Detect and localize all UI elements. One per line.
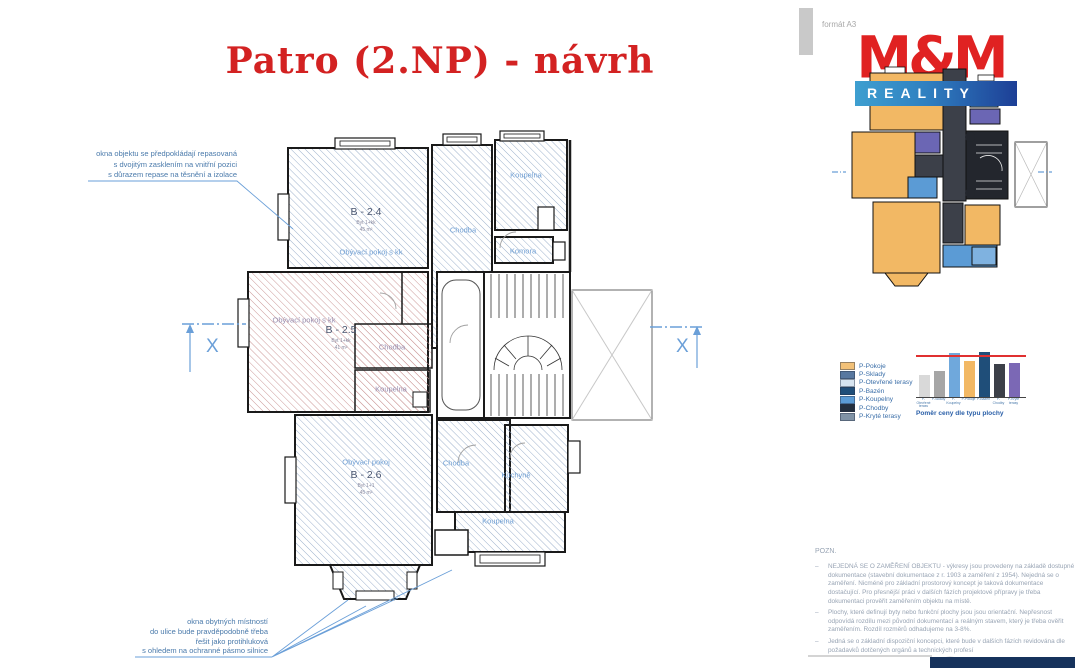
legend-swatch (840, 362, 855, 370)
room-area-b25: 41 m² (335, 345, 348, 351)
room-label-b26: Obývací pokoj (342, 458, 390, 467)
chart-reference-line (916, 355, 1026, 356)
legend-label: P-Koupelny (859, 396, 893, 403)
legend-item: P-Kryté terasy (840, 412, 913, 420)
legend-swatch (840, 396, 855, 404)
legend-swatch (840, 387, 855, 395)
room-label-chodba-bottom: Chodba (443, 459, 469, 468)
legend-item: P-Sklady (840, 370, 913, 378)
legend-swatch (840, 379, 855, 387)
note-bullet: – (815, 638, 821, 655)
legend-label: P-Otevřené terasy (859, 379, 913, 386)
room-unit-b26: Byt 1+1 (357, 483, 374, 489)
price-chart: P-Otevřené terasyP-SkladyP-KoupelnyP-Pok… (916, 349, 1026, 417)
room-code-b25: B - 2.5 (326, 324, 357, 336)
legend-swatch (840, 413, 855, 421)
room-area-b24: 45 m² (360, 227, 373, 233)
note-text: Jedná se o základní dispoziční koncepci,… (828, 638, 1075, 655)
title-block-bar (930, 657, 1075, 668)
room-label-kuchyne: Kuchyně (501, 471, 530, 480)
legend-swatch (840, 404, 855, 412)
notes-section: POZN. –NEJEDNÁ SE O ZAMĚŘENÍ OBJEKTU - v… (815, 548, 1075, 658)
staircase (484, 272, 570, 418)
plan-legend: P-PokojeP-SkladyP-Otevřené terasyP-Bazén… (840, 362, 913, 421)
chart-bar (994, 364, 1005, 397)
legend-item: P-Bazén (840, 387, 913, 395)
legend-label: P-Chodby (859, 405, 888, 412)
room-label-koupelna-bottom: Koupelna (482, 517, 514, 526)
legend-label: P-Pokoje (859, 363, 886, 370)
room-code-b24: B - 2.4 (351, 206, 382, 218)
chart-tick-labels: P-Otevřené terasyP-SkladyP-KoupelnyP-Pok… (916, 398, 1026, 407)
notes-list: –NEJEDNÁ SE O ZAMĚŘENÍ OBJEKTU - výkresy… (815, 563, 1075, 655)
chart-tick: P-Bazén (976, 398, 991, 407)
chart-bar (1009, 363, 1020, 398)
notes-heading: POZN. (815, 548, 1075, 555)
legend-swatch (840, 371, 855, 379)
chart-tick: P-Chodby (991, 398, 1006, 407)
drawing-sheet: Patro (2.NP) - návrh okna objektu se pře… (0, 0, 1075, 668)
legend-item: P-Otevřené terasy (840, 379, 913, 387)
room-unit-b24: Byt 1+kk (356, 220, 375, 226)
legend-item: P-Pokoje (840, 362, 913, 370)
note-bullet: – (815, 563, 821, 606)
annotation-bottom: okna obytných místností do ulice bude pr… (120, 617, 268, 656)
legend-label: P-Kryté terasy (859, 413, 901, 420)
page-title: Patro (2.NP) - návrh (210, 40, 670, 82)
chart-bar (964, 361, 975, 397)
note-text: Plochy, které definují byty nebo funkční… (828, 609, 1075, 635)
chart-title: Poměr ceny dle typu plochy (916, 410, 1026, 417)
chart-tick: P-Sklady (931, 398, 946, 407)
legend-item: P-Koupelny (840, 396, 913, 404)
room-label-koupelna-top: Koupelna (510, 171, 542, 180)
room-area-b26: 45 m² (360, 490, 373, 496)
chart-tick: P-Otevřené terasy (916, 398, 931, 407)
note-text: NEJEDNÁ SE O ZAMĚŘENÍ OBJEKTU - výkresy … (828, 563, 1075, 606)
chart-bar (934, 371, 945, 397)
note-item: –NEJEDNÁ SE O ZAMĚŘENÍ OBJEKTU - výkresy… (815, 563, 1075, 606)
room-label-komora: Komora (510, 247, 536, 256)
chart-bar (919, 375, 930, 397)
chart-tick: P-Kryté terasy (1006, 398, 1021, 407)
legend-item: P-Chodby (840, 404, 913, 412)
legend-label: P-Bazén (859, 388, 884, 395)
note-item: –Jedná se o základní dispoziční koncepci… (815, 638, 1075, 655)
room-code-b26: B - 2.6 (351, 469, 382, 481)
chart-tick: P-Pokoje (961, 398, 976, 407)
room-kuchyne (505, 425, 568, 512)
chart-bar (949, 353, 960, 397)
room-unit-b25: Byt 1+kk (331, 338, 350, 344)
room-label-chodba-mid: Chodba (379, 343, 405, 352)
legend-label: P-Sklady (859, 371, 885, 378)
sheet-edge-bar (799, 8, 813, 55)
note-bullet: – (815, 609, 821, 635)
chart-plot-area (916, 349, 1026, 398)
main-floor-plan (210, 118, 680, 618)
chart-tick: P-Koupelny (946, 398, 961, 407)
room-label-b24: Obývací pokoj s kk (340, 248, 403, 257)
room-label-koupelna-mid: Koupelna (375, 385, 407, 394)
logo-reality-bar: REALITY (855, 81, 1017, 106)
chart-bar (979, 352, 990, 397)
room-label-chodba-top: Chodba (450, 226, 476, 235)
note-item: –Plochy, které definují byty nebo funkčn… (815, 609, 1075, 635)
room-koupelna-top (495, 140, 567, 230)
